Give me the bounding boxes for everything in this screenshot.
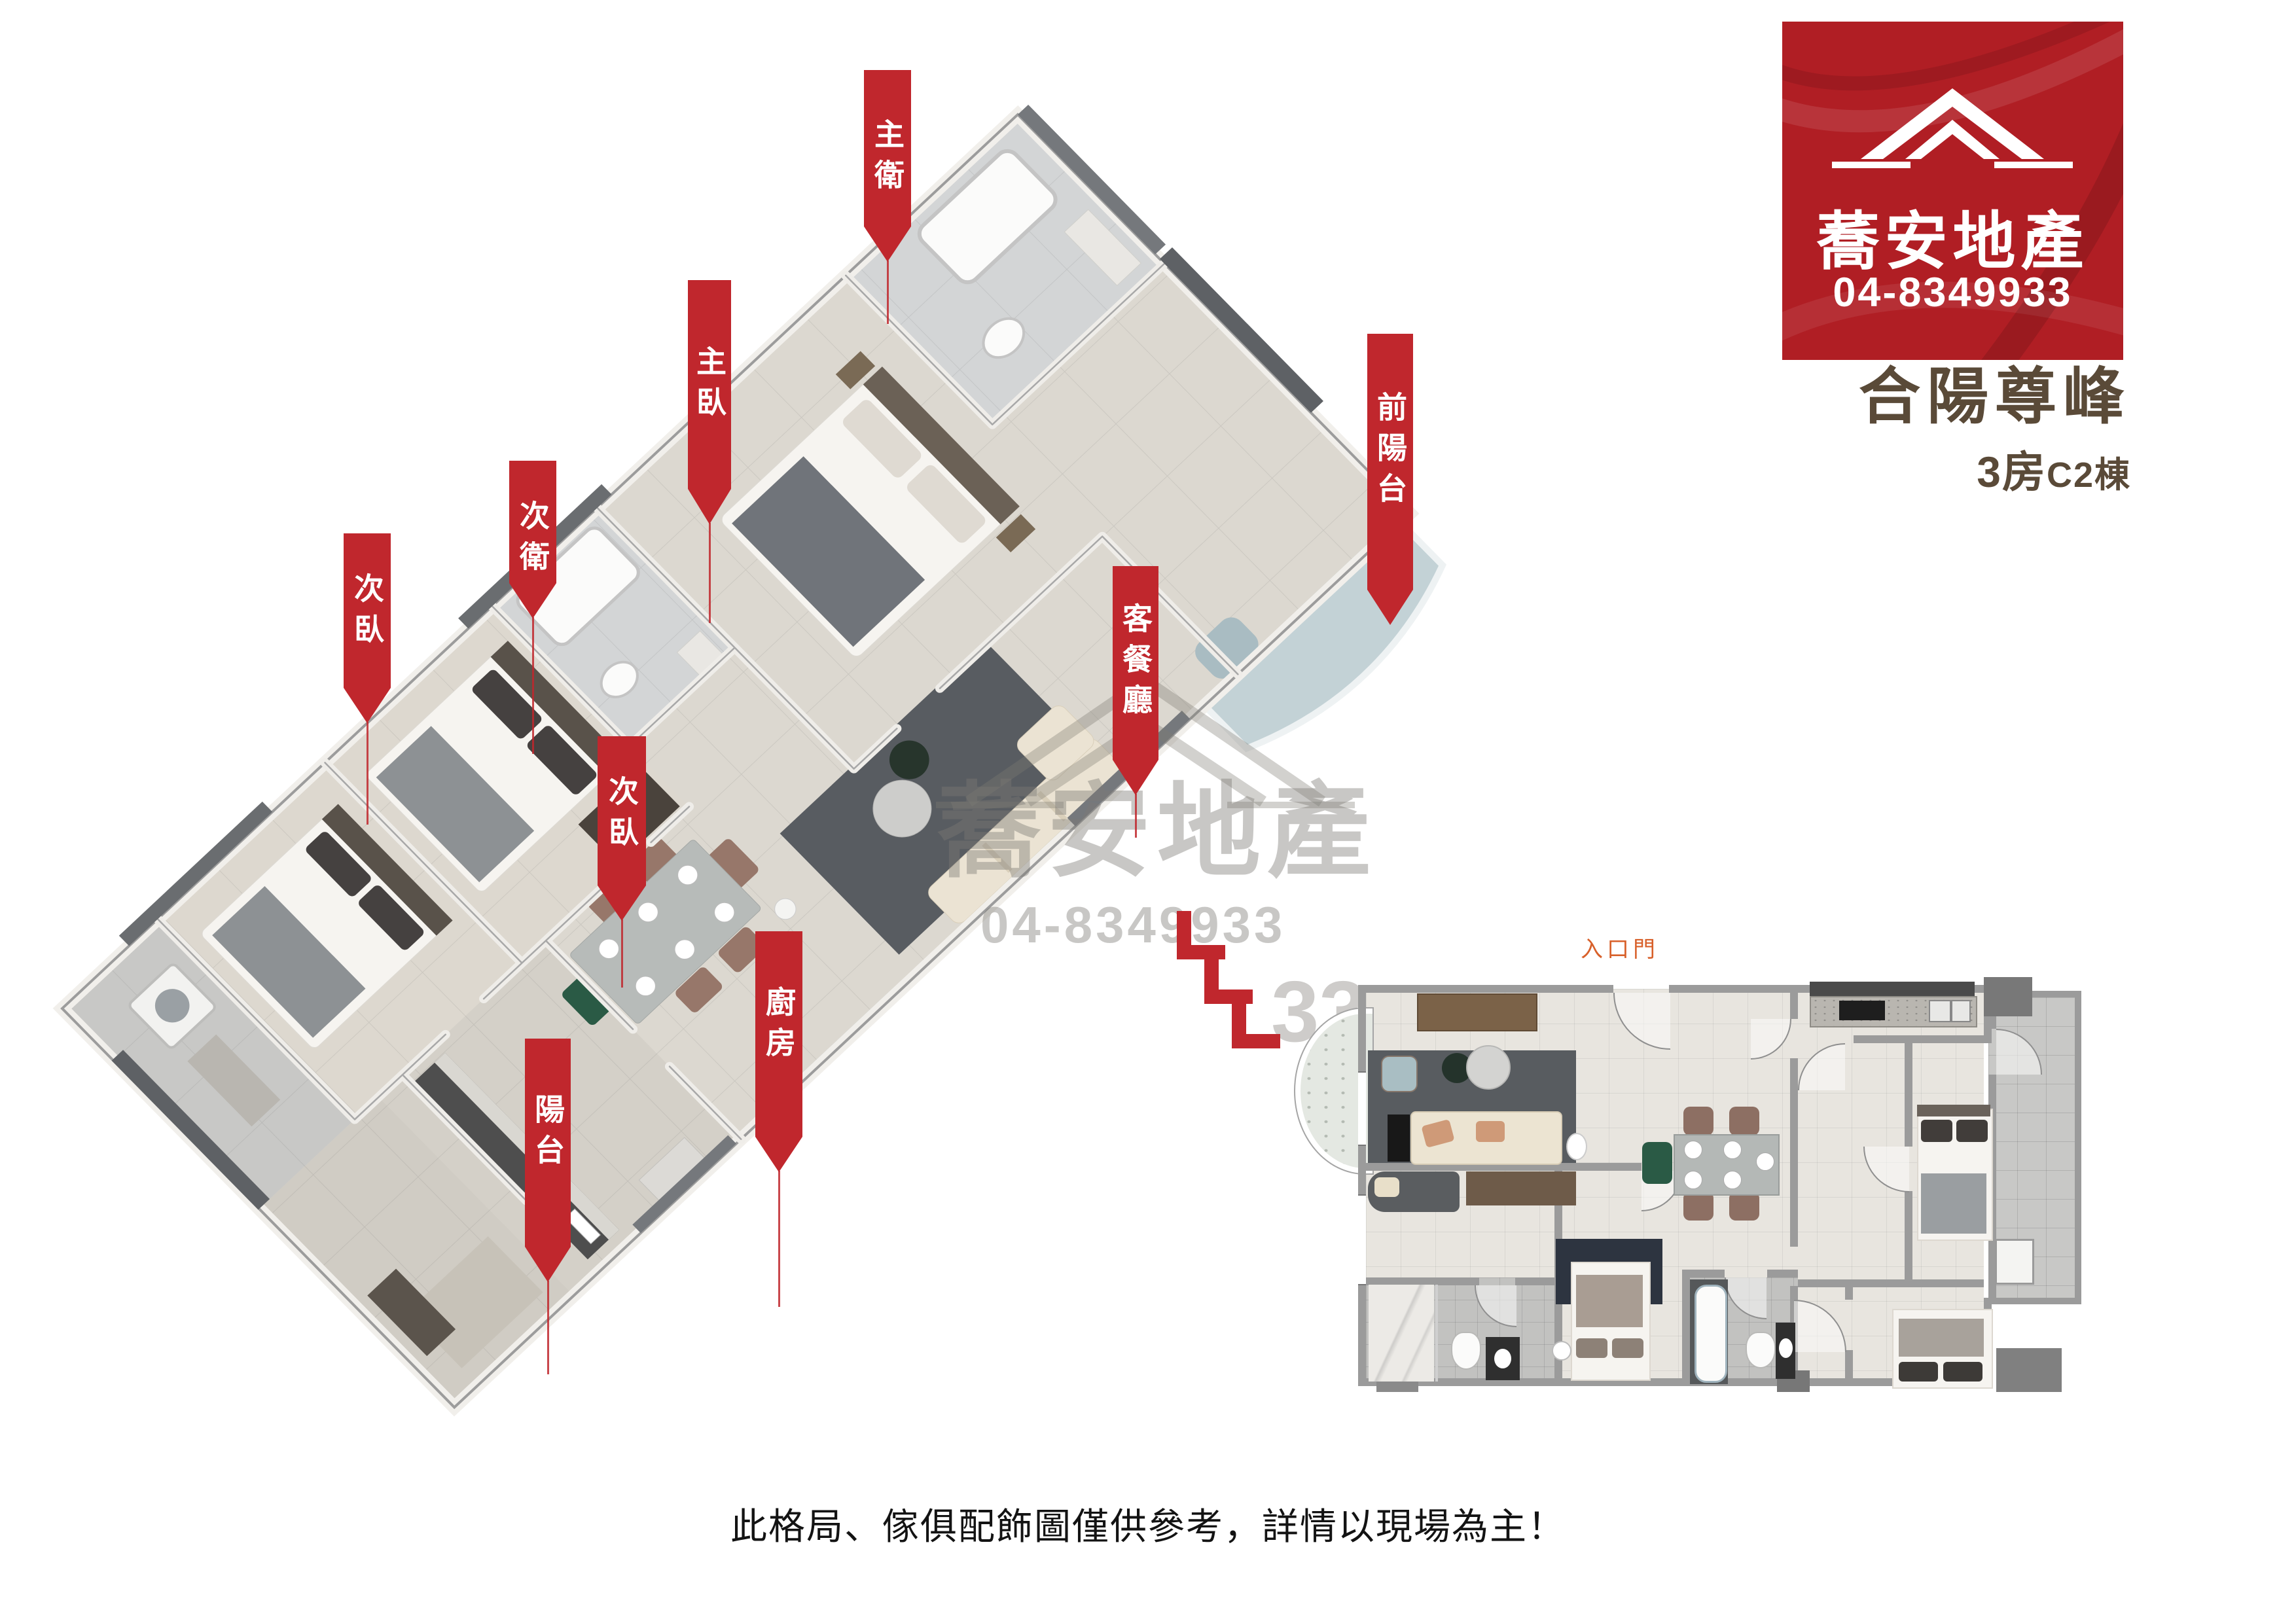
entry-direction-chevron (1232, 1000, 1280, 1048)
title-block: 合陽尊峰 3房C2棟 (1702, 365, 2131, 500)
flag-leader (778, 1171, 780, 1307)
wall (1905, 1191, 1912, 1286)
wall (1790, 1058, 1798, 1247)
stove (1839, 1001, 1885, 1020)
bedroom-pillow (1956, 1120, 1988, 1142)
unit-spec-building: C2棟 (2047, 455, 2131, 495)
wall (1682, 1270, 1690, 1386)
flag-master-bath-label: 主衛 (872, 70, 903, 262)
plate (1723, 1171, 1742, 1189)
washing-machine (1995, 1239, 2034, 1285)
window (1358, 1071, 1366, 1146)
dining-chair (1683, 1107, 1713, 1135)
flag-second-bedroom-left: 次臥 (344, 533, 391, 723)
bedroom-headboard (1917, 1105, 1990, 1116)
bathtub (1695, 1285, 1727, 1383)
window (1358, 1194, 1366, 1285)
flag-kitchen: 廚房 (755, 931, 802, 1172)
entry-door-label: 入口門 (1535, 931, 1705, 963)
disclaimer-text: 此格局、傢俱配飾圖僅供參考，詳情以現場為主！ (690, 1497, 1606, 1550)
dark-block (1984, 977, 2032, 1016)
vanity-basin (1779, 1338, 1793, 1358)
poster: 蕎安地產 04-8349933 33 主衛 主臥 次衛 次臥 次臥 客餐廳 廚房… (0, 0, 2296, 1623)
entry-direction-chevron (1204, 955, 1253, 1004)
flag-leader (367, 722, 368, 825)
unit-spec: 3房C2棟 (1702, 437, 2131, 500)
watermark-phone: 04-8349933 (980, 895, 1285, 955)
flag-leader (709, 523, 711, 623)
flag-second-bath-label: 次衛 (518, 461, 548, 618)
flag-front-balcony-label: 前陽台 (1375, 334, 1405, 625)
flag-second-bedroom-mid-label: 次臥 (607, 736, 637, 921)
shower-marble (1369, 1285, 1434, 1382)
plate (1756, 1152, 1774, 1171)
watermark-brand: 蕎安地產 (937, 747, 1377, 897)
dark-block (1996, 1348, 2062, 1392)
dining-chair (1729, 1192, 1759, 1221)
sideboard (1466, 1171, 1576, 1205)
kitchen-upper-cabinet (1810, 982, 1975, 996)
flag-second-bedroom-left-label: 次臥 (352, 533, 382, 723)
dining-chair-green (1642, 1142, 1672, 1184)
wall (1988, 1298, 2081, 1304)
master-bed-pillow (1612, 1338, 1643, 1358)
wall (1767, 1270, 1798, 1277)
logo-card: 蕎安地產 04-8349933 (1782, 22, 2123, 360)
bedroom-pillow (1943, 1362, 1982, 1382)
bedroom-pillow (1921, 1120, 1952, 1142)
flag-leader (621, 919, 623, 988)
plate (1684, 1171, 1702, 1189)
flag-second-bedroom-mid: 次臥 (598, 736, 646, 921)
wall (1515, 1277, 1554, 1285)
wall (1358, 985, 1366, 1386)
wall (2075, 991, 2081, 1304)
plate (1723, 1141, 1742, 1159)
deco-egg (1566, 1133, 1587, 1160)
bedroom-blanket (1921, 1173, 1986, 1234)
flag-leader (547, 1281, 549, 1374)
dining-chair (1683, 1192, 1713, 1221)
nightstand (1552, 1341, 1571, 1361)
shower-glass (1435, 1285, 1438, 1382)
toilet (1746, 1332, 1776, 1368)
floorplan-2d: 入口門 (1358, 977, 2032, 1394)
coffee-table (1466, 1045, 1511, 1090)
master-bed-blanket (1576, 1275, 1643, 1327)
master-bed-pillow (1576, 1338, 1607, 1358)
wall (1798, 1279, 1984, 1287)
flag-leader (1135, 794, 1137, 838)
bedroom-pillow (1899, 1362, 1938, 1382)
armchair-blue (1381, 1056, 1418, 1092)
tv-console (1417, 993, 1537, 1031)
logo-phone-text: 04-8349933 (1782, 269, 2123, 316)
wall (1358, 985, 1613, 993)
vanity-basin (1494, 1349, 1511, 1368)
unit-spec-rooms: 3房 (1977, 448, 2047, 496)
wall (1905, 1043, 1912, 1147)
plate (1684, 1141, 1702, 1159)
project-name: 合陽尊峰 (1702, 365, 2131, 428)
sink (1929, 1000, 1951, 1022)
roof-icon (1828, 82, 2077, 180)
flag-living-dining: 客餐廳 (1113, 566, 1158, 795)
wall (1845, 1287, 1853, 1300)
flag-master-bath: 主衛 (864, 70, 911, 262)
wall (1854, 1035, 1987, 1043)
sink (1951, 1000, 1971, 1022)
flag-master-bedroom-label: 主臥 (694, 280, 725, 524)
wall (1790, 993, 1798, 1019)
flag-living-dining-label: 客餐廳 (1121, 566, 1151, 795)
entry-direction-chevron (1177, 911, 1225, 959)
chaise-pillow (1374, 1177, 1399, 1197)
flag-master-bedroom: 主臥 (688, 280, 731, 524)
toilet (1451, 1332, 1481, 1370)
flag-rear-balcony: 陽台 (525, 1039, 571, 1282)
tv-bench-dark (1388, 1115, 1410, 1162)
flag-leader (532, 617, 534, 754)
flag-kitchen-label: 廚房 (764, 931, 794, 1172)
flag-rear-balcony-label: 陽台 (533, 1039, 563, 1282)
bedroom-blanket (1899, 1319, 1984, 1357)
flag-leader (887, 260, 889, 324)
flag-front-balcony: 前陽台 (1367, 334, 1413, 625)
wall (1845, 1350, 1853, 1378)
dining-chair (1729, 1107, 1759, 1135)
sofa-cushion (1476, 1121, 1505, 1142)
logo-brand-text: 蕎安地產 (1782, 190, 2123, 281)
